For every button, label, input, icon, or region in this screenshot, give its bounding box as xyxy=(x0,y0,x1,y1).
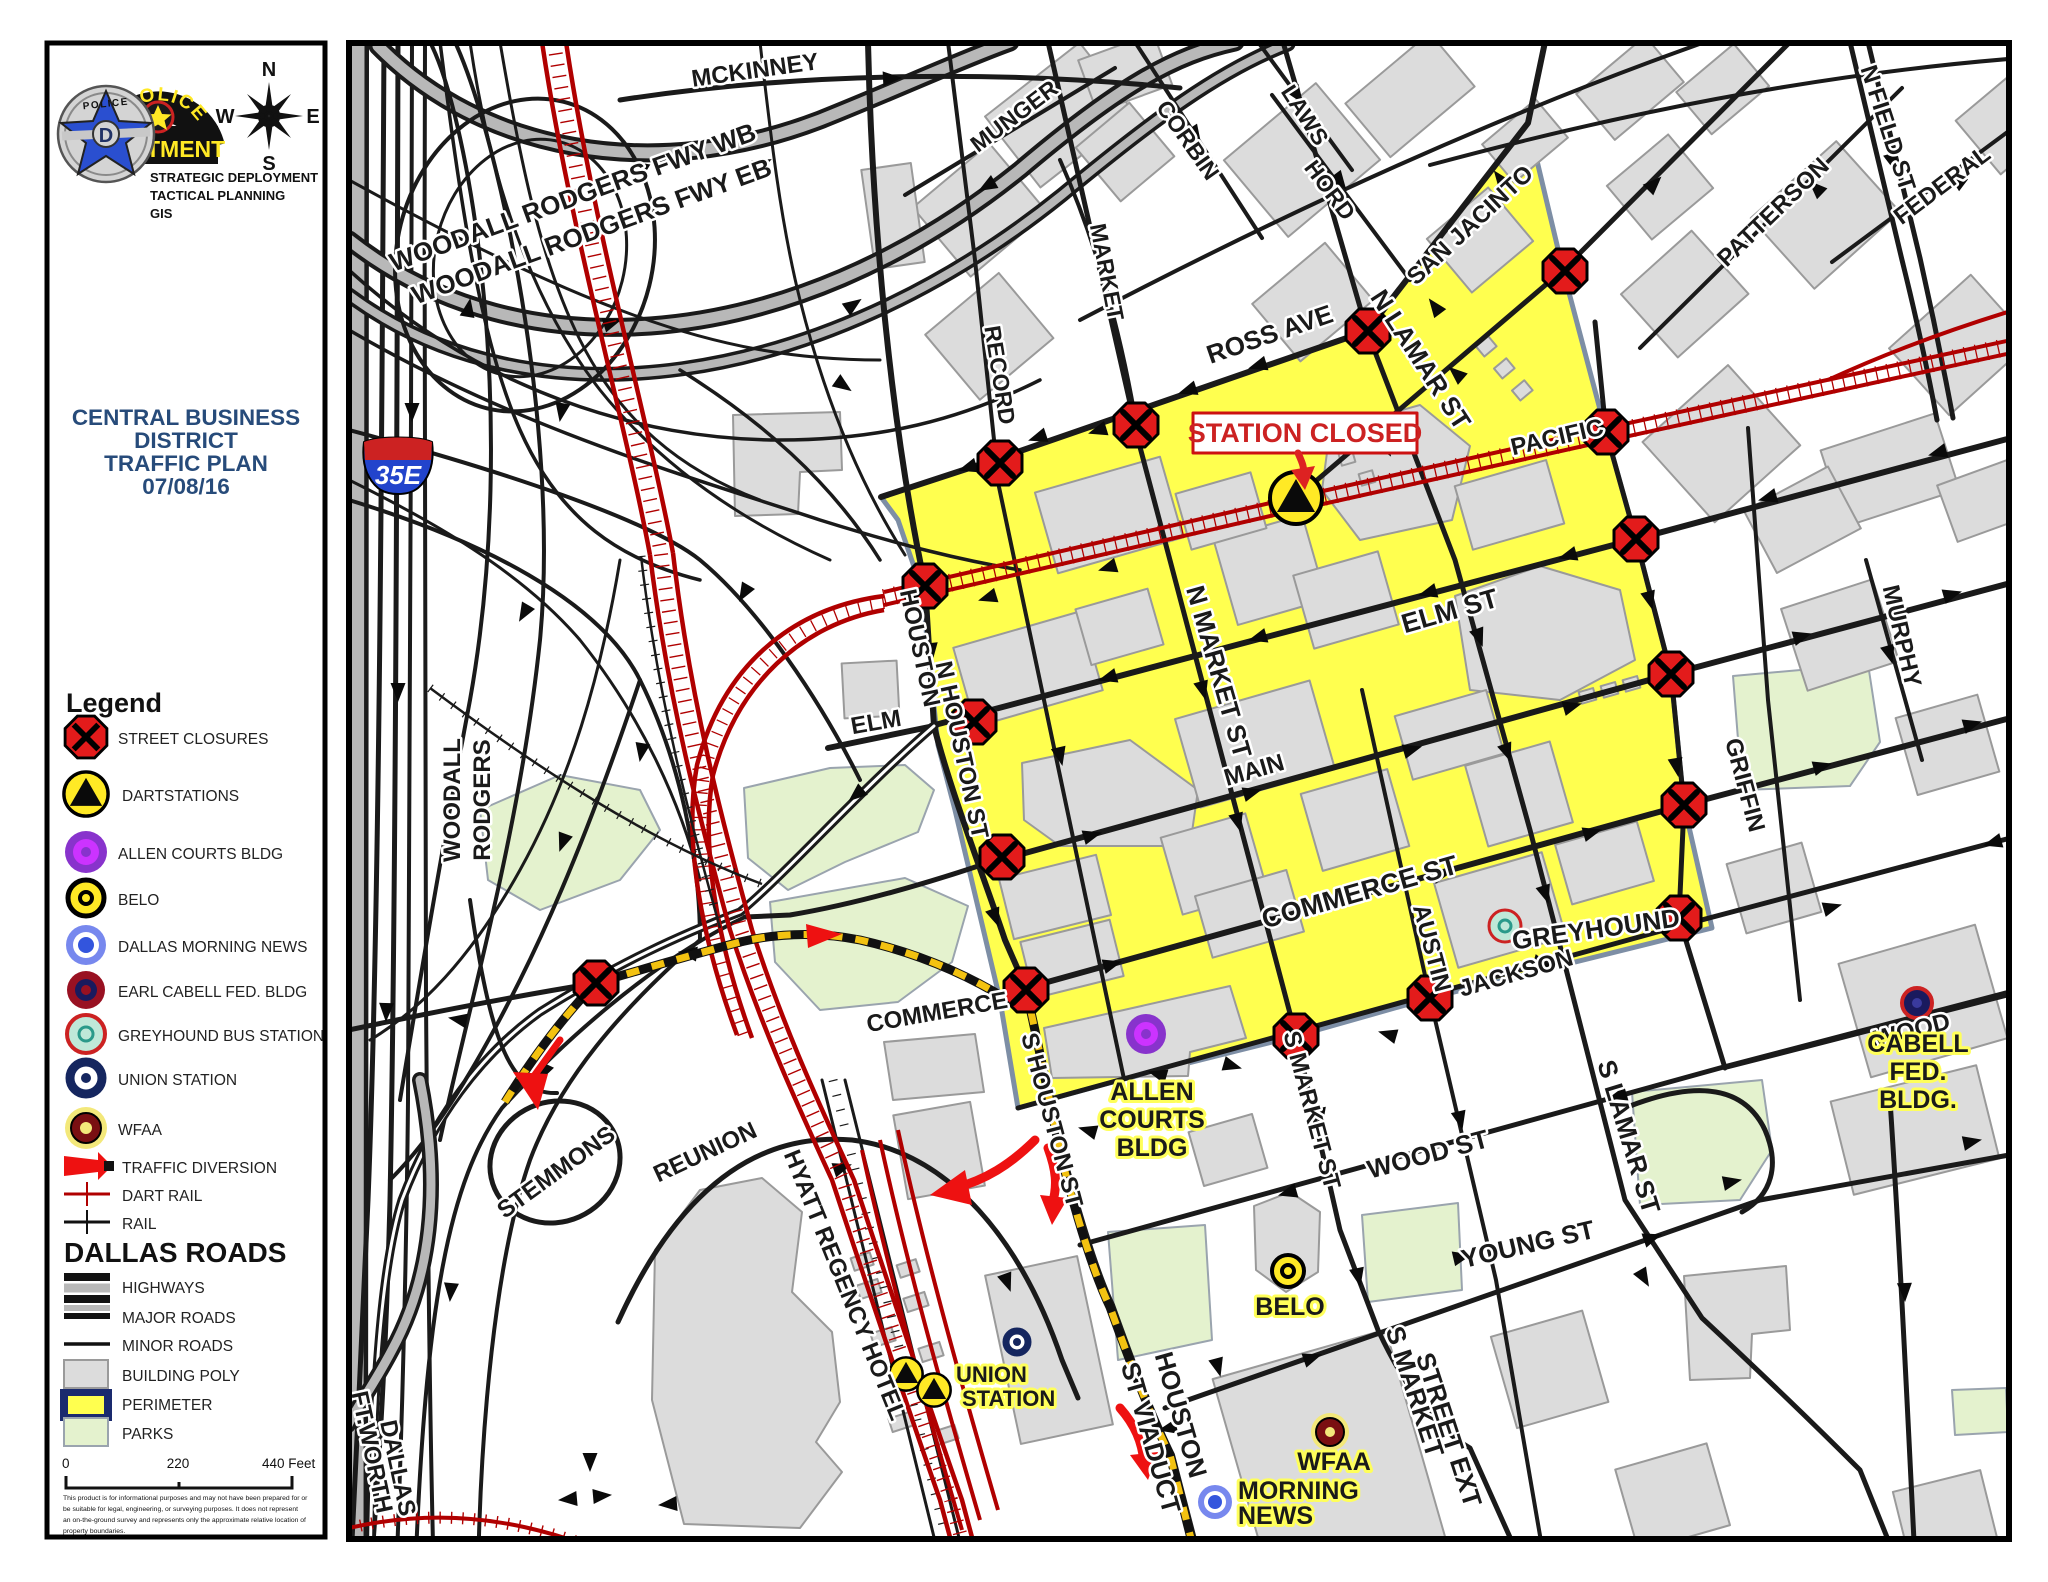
svg-text:STRATEGIC DEPLOYMENT: STRATEGIC DEPLOYMENT xyxy=(150,170,318,185)
svg-text:STATION CLOSED: STATION CLOSED xyxy=(1188,418,1423,448)
svg-text:BELO: BELO xyxy=(118,892,159,909)
svg-text:440 Feet: 440 Feet xyxy=(262,1456,316,1471)
svg-text:MINOR ROADS: MINOR ROADS xyxy=(122,1338,233,1355)
svg-text:PERIMETER: PERIMETER xyxy=(122,1397,212,1414)
svg-text:ALLEN: ALLEN xyxy=(1110,1078,1193,1106)
svg-text:TMENT: TMENT xyxy=(146,136,225,162)
svg-text:ALLEN COURTS BLDG: ALLEN COURTS BLDG xyxy=(118,846,283,863)
svg-text:be suitable for legal, engine: be suitable for legal, engineering, or s… xyxy=(63,1506,298,1513)
svg-text:BLDG: BLDG xyxy=(1117,1134,1188,1162)
svg-text:RODGERS: RODGERS xyxy=(469,739,496,860)
svg-text:property boundaries.: property boundaries. xyxy=(63,1528,125,1535)
svg-text:DISTRICT: DISTRICT xyxy=(134,428,238,453)
svg-text:FED.: FED. xyxy=(1890,1058,1947,1086)
svg-text:HIGHWAYS: HIGHWAYS xyxy=(122,1280,205,1297)
svg-text:D: D xyxy=(99,125,113,147)
svg-text:GREYHOUND BUS STATION: GREYHOUND BUS STATION xyxy=(118,1028,324,1045)
svg-text:GIS: GIS xyxy=(150,206,173,221)
svg-text:NEWS: NEWS xyxy=(1238,1502,1313,1530)
svg-text:PARKS: PARKS xyxy=(122,1426,173,1443)
svg-text:TACTICAL PLANNING: TACTICAL PLANNING xyxy=(150,188,285,203)
svg-text:W: W xyxy=(216,106,235,128)
svg-text:0: 0 xyxy=(62,1456,70,1471)
svg-text:UNION STATION: UNION STATION xyxy=(118,1072,237,1089)
svg-text:RAIL: RAIL xyxy=(122,1216,157,1233)
svg-text:STREET CLOSURES: STREET CLOSURES xyxy=(118,731,268,748)
svg-text:EARL CABELL FED. BLDG: EARL CABELL FED. BLDG xyxy=(118,984,307,1001)
svg-text:WFAA: WFAA xyxy=(118,1122,163,1139)
svg-text:Legend: Legend xyxy=(66,688,162,718)
svg-text:E: E xyxy=(306,106,319,128)
svg-text:TRAFFIC PLAN: TRAFFIC PLAN xyxy=(104,451,268,476)
svg-text:DARTSTATIONS: DARTSTATIONS xyxy=(122,788,239,805)
svg-text:35E: 35E xyxy=(375,460,422,490)
svg-text:STATION: STATION xyxy=(962,1386,1055,1411)
svg-text:TRAFFIC DIVERSION: TRAFFIC DIVERSION xyxy=(122,1160,277,1177)
svg-text:220: 220 xyxy=(167,1456,190,1471)
svg-text:This product is for informatio: This product is for informational purpos… xyxy=(63,1495,308,1502)
svg-text:DART RAIL: DART RAIL xyxy=(122,1188,203,1205)
svg-text:MAJOR ROADS: MAJOR ROADS xyxy=(122,1310,236,1327)
svg-text:UNION: UNION xyxy=(956,1362,1027,1387)
svg-text:BUILDING POLY: BUILDING POLY xyxy=(122,1368,240,1385)
svg-text:an on-the-ground survey and r: an on-the-ground survey and represents o… xyxy=(63,1517,306,1524)
svg-text:CABELL: CABELL xyxy=(1867,1030,1968,1058)
svg-text:N: N xyxy=(262,59,276,81)
svg-text:MORNING: MORNING xyxy=(1238,1477,1359,1505)
svg-text:CENTRAL BUSINESS: CENTRAL BUSINESS xyxy=(72,405,300,430)
svg-text:BELO: BELO xyxy=(1255,1293,1324,1321)
svg-text:BLDG.: BLDG. xyxy=(1879,1086,1957,1114)
svg-text:07/08/16: 07/08/16 xyxy=(142,474,230,499)
svg-text:WOODALL: WOODALL xyxy=(439,738,466,862)
svg-text:DALLAS ROADS: DALLAS ROADS xyxy=(64,1237,286,1268)
svg-text:WFAA: WFAA xyxy=(1297,1448,1371,1476)
svg-text:COURTS: COURTS xyxy=(1099,1106,1205,1134)
svg-text:DALLAS MORNING NEWS: DALLAS MORNING NEWS xyxy=(118,939,307,956)
